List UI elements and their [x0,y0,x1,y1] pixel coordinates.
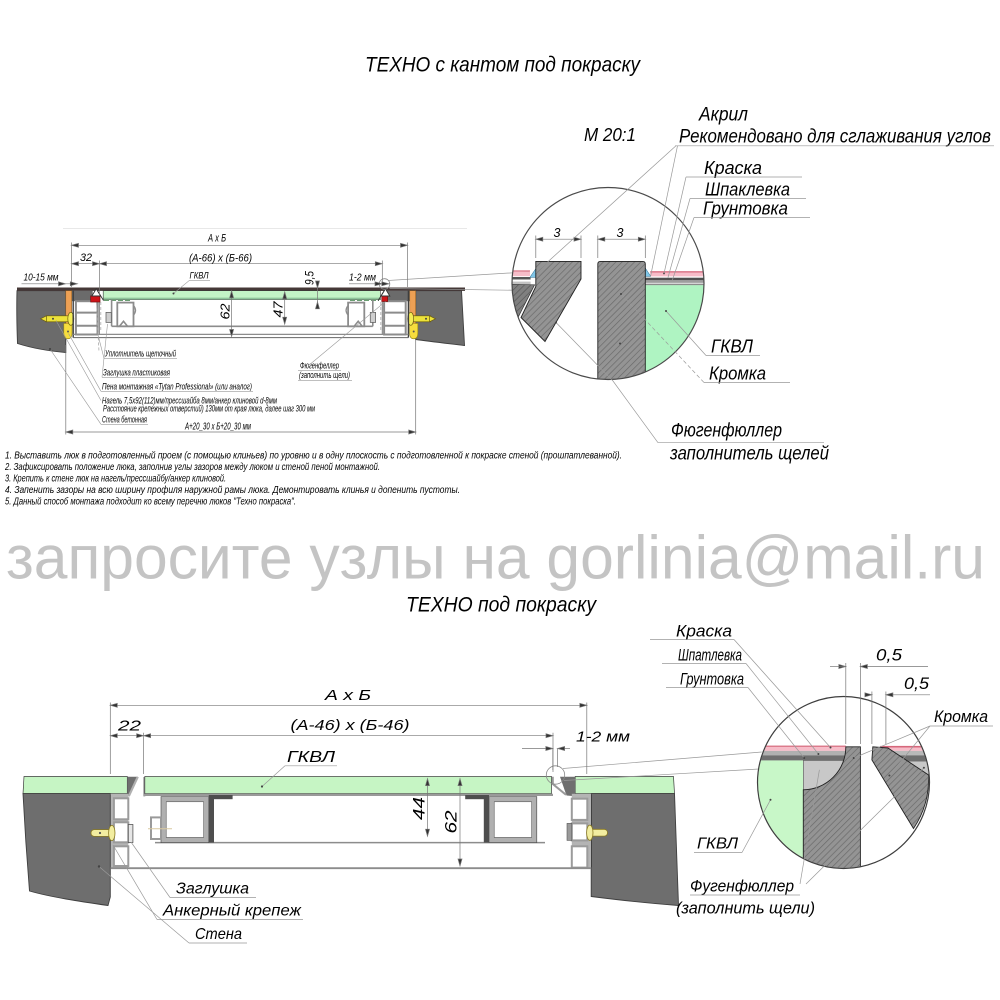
svg-text:62: 62 [218,303,233,320]
svg-text:5. Данный способ монтажа подхо: 5. Данный способ монтажа подходит ко все… [5,497,296,508]
svg-text:47: 47 [271,301,286,318]
svg-text:ТЕХНО под покраску: ТЕХНО под покраску [406,594,597,617]
svg-text:Шпатлевка: Шпатлевка [678,647,742,665]
svg-text:Заглушка: Заглушка [176,881,249,898]
svg-text:(заполнить щели): (заполнить щели) [299,370,350,380]
svg-text:Заглушка пластиковая: Заглушка пластиковая [103,367,170,377]
svg-text:1-2 мм: 1-2 мм [576,730,630,746]
svg-text:Стена: Стена [195,926,242,943]
svg-text:Краска: Краска [676,623,732,641]
svg-text:Фугенфюллер: Фугенфюллер [690,878,794,896]
svg-text:Кромка: Кромка [934,708,988,726]
svg-text:(заполнить щели): (заполнить щели) [676,900,815,918]
svg-text:А+20_30 х Б+20_30 мм: А+20_30 х Б+20_30 мм [184,422,251,433]
svg-text:(А-46) х (Б-46): (А-46) х (Б-46) [291,718,410,734]
svg-text:1-2 мм: 1-2 мм [349,272,376,284]
svg-text:ГКВЛ: ГКВЛ [287,749,335,766]
svg-text:заполнитель щелей: заполнитель щелей [669,444,829,465]
svg-text:Рекомендовано для сглаживания: Рекомендовано для сглаживания углов [679,127,991,148]
svg-text:4. Запенить зазоры на всю шири: 4. Запенить зазоры на всю ширину профиля… [5,485,460,496]
svg-text:Уплотнитель щеточный: Уплотнитель щеточный [104,348,176,358]
svg-text:запросите узлы на gorlinia@mai: запросите узлы на gorlinia@mail.ru [6,524,985,592]
svg-text:(А-66) х (Б-66): (А-66) х (Б-66) [189,253,252,265]
svg-text:10-15 мм: 10-15 мм [24,272,59,284]
svg-text:А х Б: А х Б [207,233,226,245]
svg-text:44: 44 [411,797,429,820]
svg-text:ГКВЛ: ГКВЛ [697,836,738,853]
svg-text:Акрил: Акрил [698,105,748,126]
svg-text:Анкерный крепеж: Анкерный крепеж [162,903,302,920]
svg-text:3: 3 [554,226,561,240]
svg-text:Расстояние крепежных отверстий: Расстояние крепежных отверстий) 130мм от… [103,404,315,414]
svg-text:А х Б: А х Б [324,688,371,704]
svg-text:Стена бетонная: Стена бетонная [102,414,147,424]
svg-text:Краска: Краска [704,157,762,178]
svg-text:Фюгенфеллер: Фюгенфеллер [300,360,339,370]
svg-text:ТЕХНО с кантом под покраску: ТЕХНО с кантом под покраску [365,53,641,77]
svg-text:0,5: 0,5 [876,646,903,665]
svg-text:Грунтовка: Грунтовка [680,671,744,689]
svg-text:2. Зафиксировать положение люк: 2. Зафиксировать положение люка, заполни… [4,462,380,473]
svg-text:Кромка: Кромка [709,363,766,384]
svg-text:Грунтовка: Грунтовка [703,198,788,219]
svg-text:3. Крепить к стене люк на наге: 3. Крепить к стене люк на нагель/прессша… [5,474,226,485]
svg-text:Шпаклевка: Шпаклевка [705,179,790,200]
svg-text:ГКВЛ: ГКВЛ [190,270,210,280]
svg-text:ГКВЛ: ГКВЛ [711,336,753,357]
svg-text:1. Выставить люк в подготовлен: 1. Выставить люк в подготовленный проем … [5,451,622,462]
svg-text:М 20:1: М 20:1 [584,124,636,145]
svg-text:9,5: 9,5 [305,270,317,285]
svg-text:0,5: 0,5 [904,674,930,693]
svg-text:32: 32 [80,252,92,264]
svg-text:22: 22 [117,719,141,735]
svg-text:62: 62 [443,811,461,834]
svg-text:3: 3 [617,226,624,240]
svg-text:Фюгенфюллер: Фюгенфюллер [671,421,782,442]
svg-text:Пена монтажная «Tytan Professi: Пена монтажная «Tytan Professional» (или… [102,381,252,391]
